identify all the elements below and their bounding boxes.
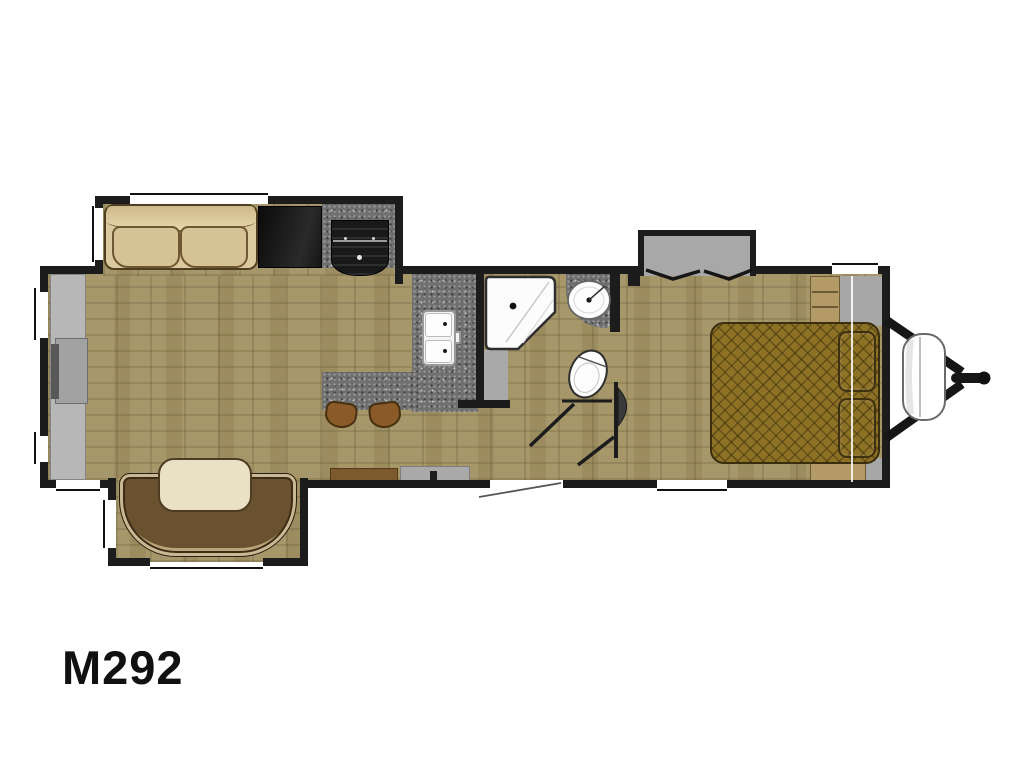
model-label: M292	[62, 640, 184, 695]
slideout-top-wall-seg	[268, 196, 403, 204]
wardrobe-cabinet-bottom	[810, 462, 866, 481]
sink-drain	[443, 322, 447, 326]
shelf-line	[812, 291, 838, 293]
front-wall	[882, 266, 890, 488]
range-knob	[372, 237, 375, 240]
sink-bowl-top	[425, 313, 452, 337]
range	[331, 220, 389, 276]
pillow-top	[838, 331, 876, 392]
slideout-right-wall	[395, 196, 403, 284]
a-frame-hitch	[886, 320, 991, 438]
sink-drain	[443, 349, 447, 353]
front-cap-contour	[851, 276, 853, 482]
bathroom-wall-vertical	[476, 274, 484, 406]
bathroom-wall-horizontal	[458, 400, 510, 408]
refrigerator	[258, 206, 322, 268]
bedroom-wall-stub	[628, 266, 640, 286]
bottom-wall-seg	[304, 480, 490, 488]
sofa-cushion-left	[112, 226, 180, 268]
range-knob	[344, 237, 347, 240]
propane-tank	[903, 334, 945, 420]
floorplan-canvas: M292	[0, 0, 1024, 768]
tv-screen	[51, 344, 59, 399]
dinette-table	[158, 458, 252, 512]
shelf-line	[812, 306, 838, 308]
top-wall-left	[40, 266, 102, 274]
bottom-wall-seg	[563, 480, 657, 488]
dinette-slide-left-seg	[108, 478, 116, 500]
bottom-wall-seg	[727, 480, 890, 488]
slideout-left-wall-seg	[95, 260, 103, 274]
shower-step	[484, 350, 508, 400]
front-wardrobe-slideout	[638, 230, 756, 276]
top-wall-front1	[754, 266, 832, 274]
bottom-wall-seg	[40, 480, 56, 488]
sofa-cushion-right	[180, 226, 248, 268]
dinette-slide-right-wall	[300, 478, 308, 566]
dinette-slide-bottom-seg	[108, 558, 150, 566]
wardrobe-cabinet-top	[810, 276, 840, 324]
range-burner-cap	[357, 255, 362, 260]
rear-wall-seg	[40, 338, 48, 436]
pillow-bottom	[838, 398, 876, 458]
top-wall-mid	[398, 266, 640, 274]
tv	[55, 338, 88, 404]
sink-faucet	[454, 331, 461, 344]
sink-bowl-bottom	[425, 340, 452, 363]
range-control-line	[333, 240, 387, 242]
bathroom-sink-wall-stub	[610, 274, 620, 332]
slideout-left-wall-seg	[95, 196, 103, 208]
entry-door-swing	[479, 483, 561, 497]
